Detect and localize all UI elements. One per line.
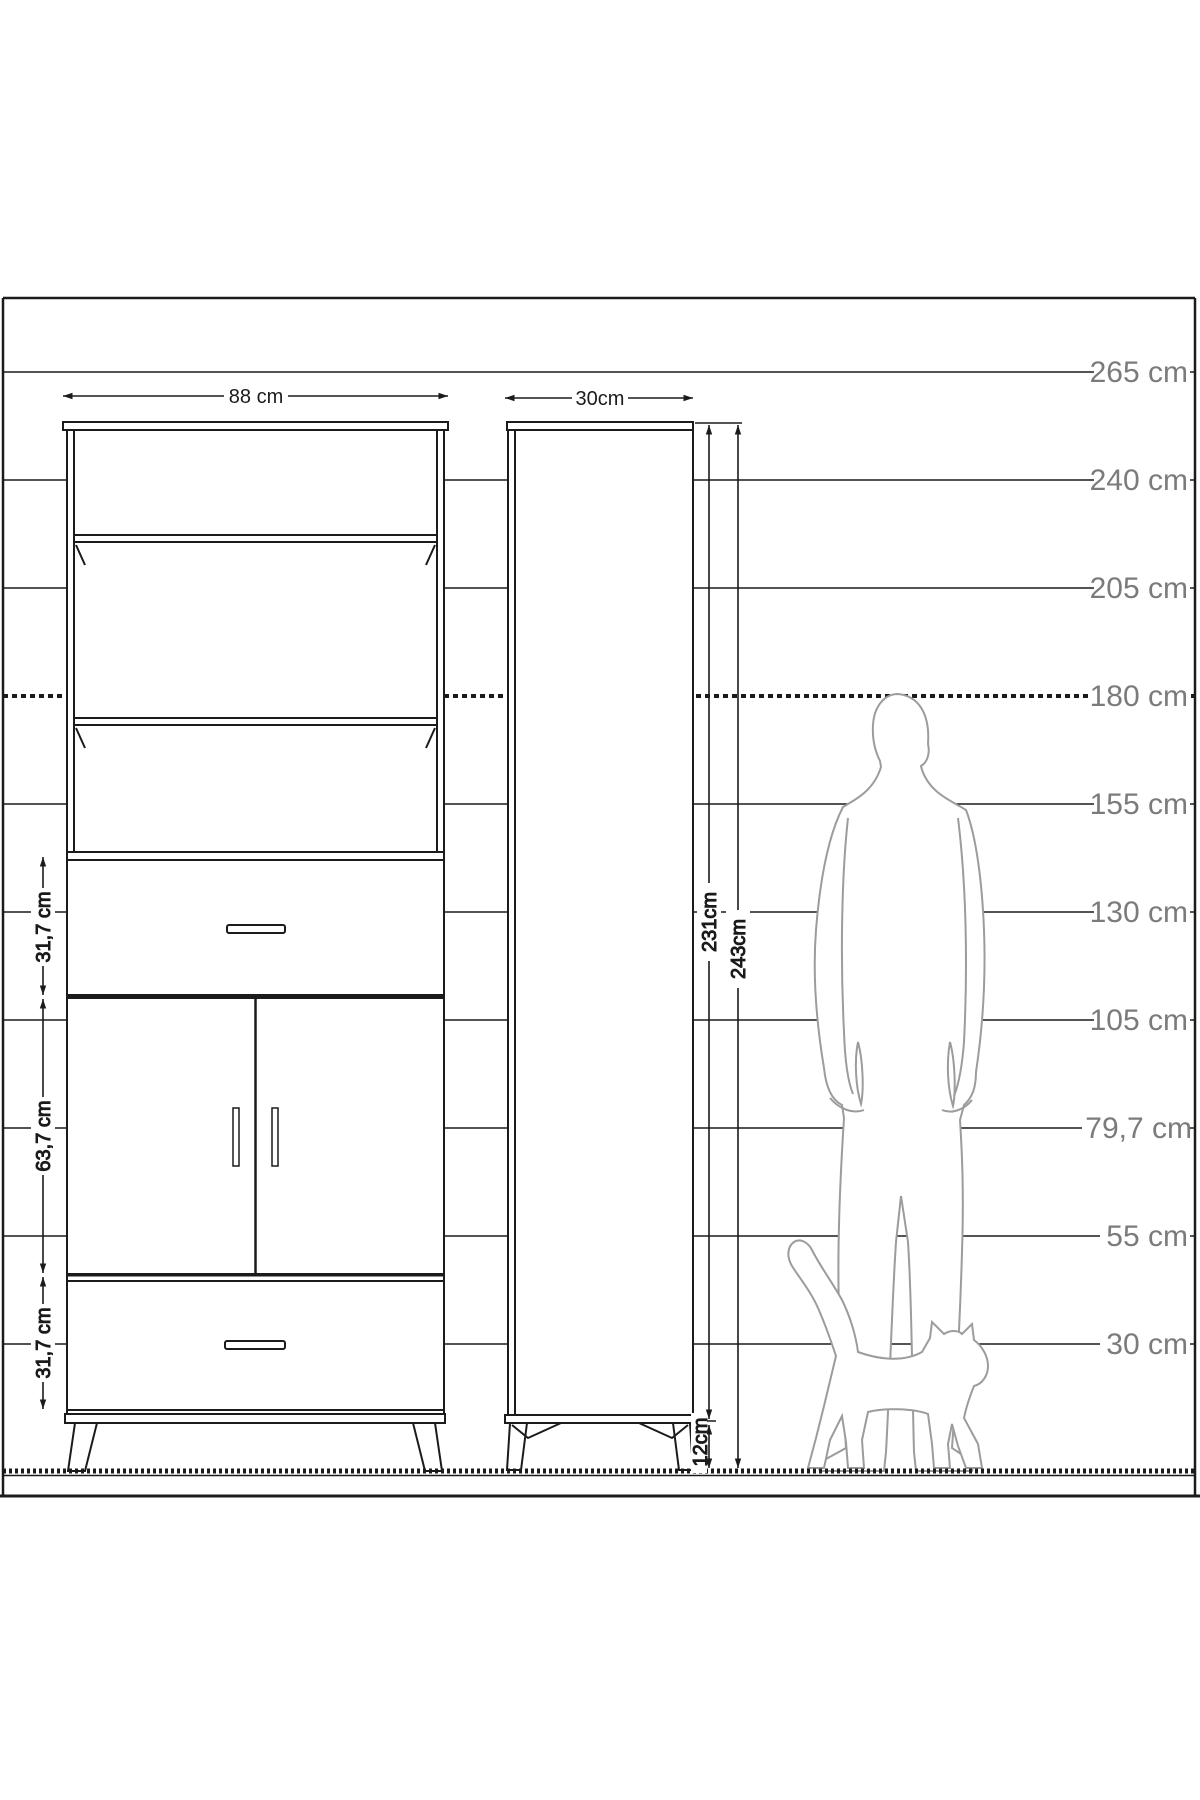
scale-label-240: 240 cm	[1090, 464, 1188, 497]
side-depth-label: 30cm	[576, 388, 625, 410]
scale-label-55: 55 cm	[1106, 1220, 1188, 1253]
scale-label-205: 205 cm	[1090, 572, 1188, 605]
right-door-handle	[272, 1108, 278, 1166]
furniture-dimension-diagram: 265 cm 240 cm 205 cm 180 cm 155 cm 130 c…	[0, 0, 1200, 1800]
top-drawer-height-label: 31,7 cm	[33, 891, 55, 962]
cabinet-front-view	[63, 422, 448, 1471]
scale-label-30: 30 cm	[1106, 1328, 1188, 1361]
side-top-board	[507, 422, 693, 430]
total-height-label: 243cm	[728, 919, 750, 979]
leg-height-label: 12cm	[690, 1418, 712, 1467]
side-body	[508, 430, 693, 1415]
side-bottom-board	[505, 1415, 693, 1423]
front-shelf-1	[74, 535, 437, 542]
cabinet-side-view	[505, 422, 693, 1470]
door-section-height-label: 63,7 cm	[33, 1100, 55, 1171]
left-door-handle	[233, 1108, 239, 1166]
front-shelf-2	[74, 718, 437, 725]
bottom-drawer-height-label: 31,7 cm	[33, 1307, 55, 1378]
front-bottom-board	[65, 1414, 445, 1423]
front-top-board	[63, 422, 448, 430]
scale-label-105: 105 cm	[1090, 1004, 1188, 1037]
front-width-label: 88 cm	[229, 386, 283, 408]
left-dimensions: 31,7 cm 63,7 cm 31,7 cm	[31, 857, 55, 1409]
scale-label-180: 180 cm	[1090, 680, 1188, 713]
scale-label-265: 265 cm	[1090, 356, 1188, 389]
scale-label-79: 79,7 cm	[1085, 1112, 1192, 1145]
scale-label-155: 155 cm	[1090, 788, 1188, 821]
top-drawer-handle	[227, 925, 285, 933]
bottom-drawer-handle	[225, 1341, 285, 1349]
scale-label-130: 130 cm	[1090, 896, 1188, 929]
body-height-label: 231cm	[699, 892, 721, 952]
diagram-page: 265 cm 240 cm 205 cm 180 cm 155 cm 130 c…	[0, 0, 1200, 1800]
